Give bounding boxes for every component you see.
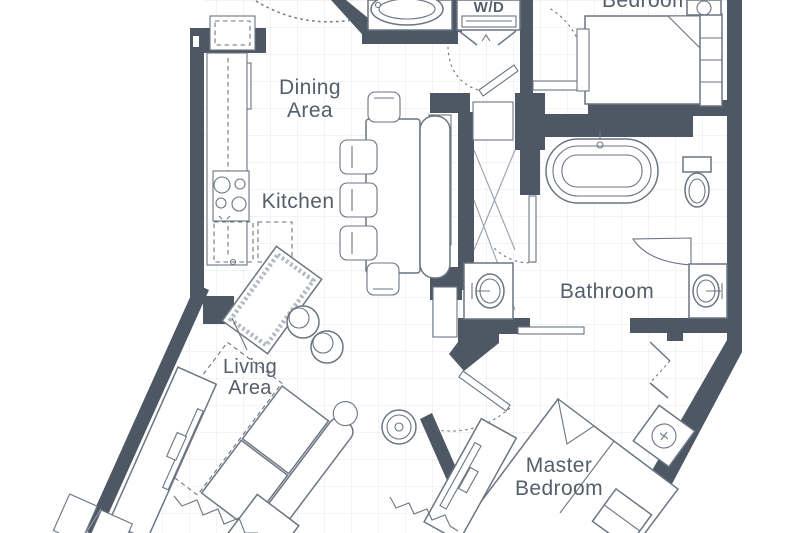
kitchen-counter [207, 53, 247, 265]
nightstand [687, 0, 721, 15]
toilet-tank [683, 157, 711, 172]
dining-chair-icon [367, 263, 399, 295]
wall [530, 114, 693, 137]
kitchen-label: Kitchen [262, 190, 335, 213]
master-label-line1: Master [526, 454, 593, 477]
shelf-icon [518, 327, 584, 334]
wall [430, 93, 470, 113]
laundry-label: W/D [474, 0, 505, 16]
wall [362, 30, 458, 44]
dining-chair-icon [340, 226, 377, 260]
dining-label-line1: Dining [279, 76, 341, 99]
dining-chair-icon [368, 92, 400, 122]
dining-label-line2: Area [287, 99, 333, 122]
floor-plan: W/D Bedroom [0, 0, 800, 533]
master-label-line2: Bedroom [515, 477, 603, 500]
dining-bench [420, 116, 450, 278]
bathtub-icon [546, 139, 658, 203]
tall-cabinet [433, 287, 457, 337]
bathroom-label: Bathroom [560, 280, 654, 303]
wall [190, 28, 204, 300]
wall [520, 0, 533, 93]
living-label-line2: Area [228, 377, 272, 399]
bedroom: Bedroom [577, 0, 722, 106]
dining-chair-icon [340, 183, 377, 217]
wall [630, 318, 730, 333]
stove-icon [213, 171, 249, 221]
bath-door-leaf [529, 196, 536, 262]
floor-plan-drawing: W/D Bedroom [0, 0, 800, 533]
wall [520, 138, 540, 195]
bed-bench [577, 29, 589, 91]
wall-notch [193, 36, 199, 47]
wall-stub [667, 333, 683, 341]
bedroom-label: Bedroom [602, 0, 690, 12]
dining-chair-icon [340, 140, 377, 174]
hall-cabinet [473, 102, 513, 140]
